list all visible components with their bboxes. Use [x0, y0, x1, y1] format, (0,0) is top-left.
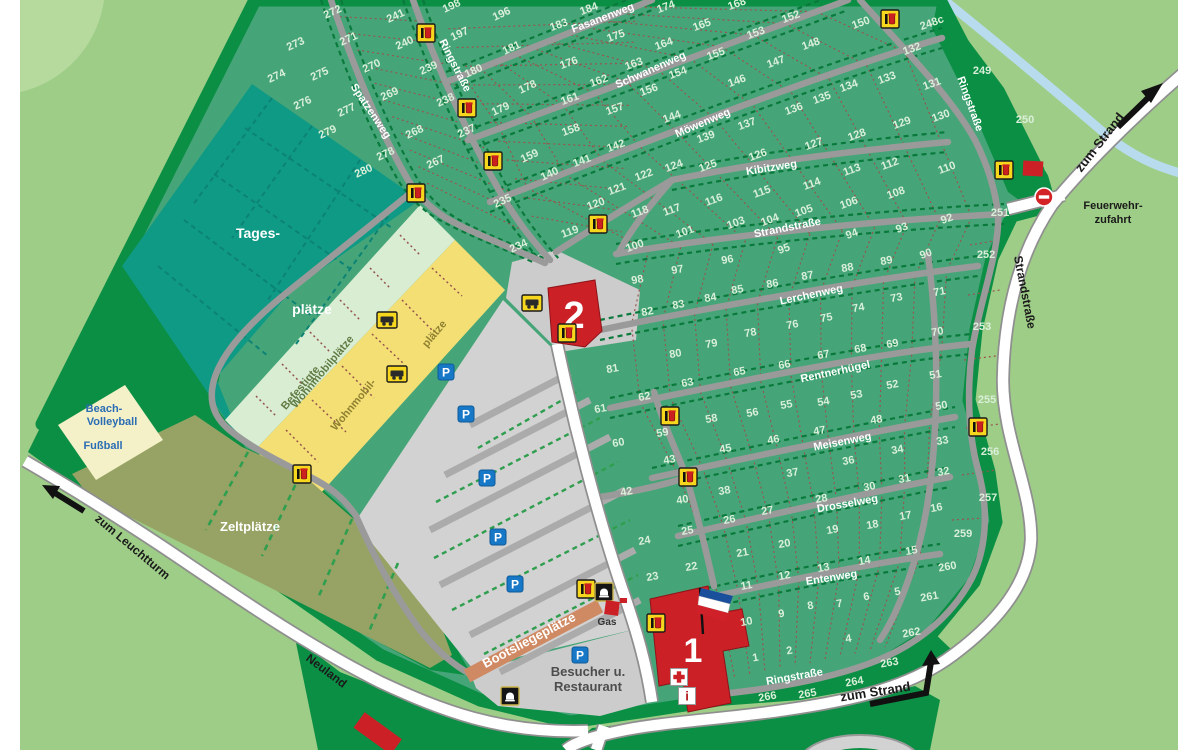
rect [599, 596, 609, 598]
plot-number: 40 [675, 493, 689, 507]
rect [425, 29, 431, 38]
gas-label: Gas [598, 617, 617, 628]
plot-number: 10 [739, 615, 753, 629]
first-aid-icon [671, 669, 688, 686]
plot-number: 71 [932, 285, 946, 299]
rect [999, 165, 1002, 175]
waste-station-icon [595, 583, 613, 601]
parking-letter: P [442, 366, 450, 380]
plot-number: 42 [619, 485, 633, 499]
plot-number: 52 [885, 378, 899, 392]
rect [414, 187, 421, 189]
rect [665, 411, 668, 421]
plot-number: 67 [816, 348, 830, 362]
rect [889, 15, 895, 24]
rect [491, 155, 498, 157]
fire-hydrant-icon [679, 468, 697, 486]
plot-number: 98 [630, 273, 644, 287]
rect [301, 470, 307, 479]
rect [1003, 166, 1009, 175]
plot-number: 56 [745, 406, 759, 420]
left-margin [0, 0, 20, 750]
feuerwehrzufahrt-label-1: Feuerwehr- [1083, 200, 1143, 212]
plot-number: 251 [991, 207, 1009, 219]
fire-hydrant-icon [661, 407, 679, 425]
rect [687, 473, 693, 482]
plot-number: 13 [816, 561, 830, 575]
plot-number: 31 [897, 472, 911, 486]
disposal-station-icon [387, 366, 407, 382]
plot-number: 18 [865, 518, 879, 532]
fire-hydrant-icon [647, 614, 665, 632]
plot-number: 97 [670, 263, 684, 277]
info-letter: i [685, 689, 689, 704]
plot-number: 12 [777, 569, 791, 583]
plot-number: 51 [928, 368, 942, 382]
parking-letter: P [511, 578, 519, 592]
plot-number: 53 [849, 388, 863, 402]
fire-hydrant-icon [558, 324, 576, 342]
plot-number: 89 [879, 254, 893, 268]
rect [683, 472, 686, 482]
fire-hydrant-icon [293, 465, 311, 483]
plot-number: 16 [929, 501, 943, 515]
rect [488, 156, 491, 166]
plot-number: 62 [637, 390, 651, 404]
circle [389, 322, 393, 326]
plot-number: 32 [936, 465, 950, 479]
rect [885, 14, 888, 24]
rect [888, 13, 895, 15]
fire-hydrant-icon [417, 24, 435, 42]
fire-hydrant-icon [881, 10, 899, 28]
circle [399, 376, 403, 380]
parking-letter: P [576, 649, 584, 663]
plot-number: 21 [735, 546, 749, 560]
plot-number: 80 [668, 347, 682, 361]
rect [565, 327, 572, 329]
fussball-label: Fußball [83, 440, 122, 452]
plot-number: 252 [977, 249, 995, 261]
circle [534, 305, 538, 309]
beach-volleyball-label-2: Volleyball [87, 416, 138, 428]
plot-number: 43 [662, 453, 676, 467]
rect [651, 618, 654, 628]
plot-number: 15 [904, 544, 918, 558]
fire-hydrant-icon [995, 161, 1013, 179]
besucher-restaurant-label-1: Besucher u. [551, 664, 625, 679]
plot-number: 82 [640, 305, 654, 319]
rect [466, 104, 472, 113]
plot-number: 96 [720, 253, 734, 267]
building-1-number: 1 [684, 632, 703, 670]
fire-hydrant-icon [589, 215, 607, 233]
plot-number: 259 [954, 528, 972, 540]
rect [465, 102, 472, 104]
plot-number: 61 [593, 402, 607, 416]
circle [527, 305, 531, 309]
rect [492, 157, 498, 166]
plot-number: 37 [785, 466, 799, 480]
rect [655, 619, 661, 628]
feuerwehrzufahrt-label-2: zufahrt [1095, 214, 1132, 226]
plot-number: 250 [1016, 114, 1034, 126]
plot-number: 23 [645, 570, 659, 584]
rect [604, 600, 620, 616]
plot-number: 76 [785, 318, 799, 332]
plot-number: 46 [766, 433, 780, 447]
rect [673, 675, 684, 679]
plot-number: 255 [978, 394, 996, 406]
rect [526, 300, 539, 306]
fire-hydrant-icon [407, 184, 425, 202]
plot-number: 33 [935, 434, 949, 448]
beach-volleyball-label-1: Beach- [86, 403, 123, 415]
plot-number: 73 [889, 291, 903, 305]
plot-number: 65 [732, 365, 746, 379]
rect [597, 220, 603, 229]
disposal-station-icon [377, 312, 397, 328]
rect [581, 584, 584, 594]
plot-number: 78 [743, 326, 757, 340]
plot-number: 63 [680, 376, 694, 390]
plot-number: 45 [718, 442, 732, 456]
plot-number: 55 [779, 398, 793, 412]
rect [424, 27, 431, 29]
plot-number: 83 [671, 298, 685, 312]
plot-number: 28 [814, 492, 828, 506]
circle [382, 322, 386, 326]
fire-hydrant-icon [969, 418, 987, 436]
zeltplaetze-label: Zeltplätze [220, 519, 280, 534]
info-point-icon: i [679, 688, 696, 705]
fire-hydrant-icon [458, 99, 476, 117]
plot-number: 26 [722, 513, 736, 527]
map-canvas: 21PPPPPPiSpatzenwegRingstraßeFasanenwegS… [0, 0, 1200, 750]
plot-number: 36 [841, 454, 855, 468]
plot-number: 38 [717, 484, 731, 498]
rect [585, 585, 591, 594]
tagesplaetze-label-1: Tages- [236, 225, 280, 241]
plot-number: 50 [934, 399, 948, 413]
plot-number: 58 [704, 412, 718, 426]
rect [669, 412, 675, 421]
plot-number: 17 [898, 509, 912, 523]
rect [411, 188, 414, 198]
rect [391, 371, 404, 377]
right-margin [1178, 0, 1200, 750]
plot-number: 60 [611, 436, 625, 450]
plot-number: 48 [869, 413, 883, 427]
plot-number: 253 [973, 321, 991, 333]
plot-number: 68 [853, 342, 867, 356]
parking-letter: P [462, 408, 470, 422]
plot-number: 85 [730, 283, 744, 297]
rect [654, 617, 661, 619]
plot-number: 11 [740, 579, 754, 593]
plot-number: 79 [704, 337, 718, 351]
plot-number: 66 [777, 358, 791, 372]
parking-letter: P [494, 531, 502, 545]
plot-number: 22 [684, 560, 698, 574]
no-entry-icon [1035, 188, 1053, 206]
plot-number: 256 [981, 446, 999, 458]
plot-number: 47 [812, 424, 826, 438]
plot-number: 87 [800, 269, 814, 283]
plot-number: 88 [840, 261, 854, 275]
rect [462, 103, 465, 113]
plot-number: 69 [885, 337, 899, 351]
fire-hydrant-icon [577, 580, 595, 598]
rect [973, 422, 976, 432]
rect [584, 583, 591, 585]
campground-map: 21PPPPPPiSpatzenwegRingstraßeFasanenwegS… [0, 0, 1200, 750]
plot-number: 257 [979, 492, 997, 504]
fire-hydrant-icon [484, 152, 502, 170]
disposal-station-icon [522, 295, 542, 311]
plot-number: 30 [862, 480, 876, 494]
besucher-restaurant-label-2: Restaurant [554, 679, 623, 694]
parking-letter: P [483, 472, 491, 486]
rect [381, 317, 394, 323]
rect [415, 189, 421, 198]
plot-number: 25 [680, 524, 694, 538]
plot-number: 27 [760, 504, 774, 518]
rect [668, 410, 675, 412]
plot-number: 59 [655, 426, 669, 440]
rect [593, 219, 596, 229]
plot-number: 19 [825, 523, 839, 537]
plot-number: 75 [819, 311, 833, 325]
building-ne-small [1023, 160, 1044, 176]
rect [596, 218, 603, 220]
plot-number: 70 [930, 325, 944, 339]
tagesplaetze-label-2: plätze [292, 301, 332, 317]
circle [392, 376, 396, 380]
rect [620, 598, 627, 603]
rect [1002, 164, 1009, 166]
rect [300, 468, 307, 470]
rect [977, 423, 983, 432]
rect [505, 700, 515, 702]
rect [562, 328, 565, 338]
rect [421, 28, 424, 38]
rect [297, 469, 300, 479]
rect [686, 471, 693, 473]
waste-station-icon [501, 687, 519, 705]
rect [1039, 195, 1049, 198]
plot-number: 20 [777, 537, 791, 551]
rect [566, 329, 572, 338]
plot-number: 249 [973, 65, 991, 77]
plot-number: 86 [765, 277, 779, 291]
plot-number: 81 [605, 362, 619, 376]
rect [976, 421, 983, 423]
